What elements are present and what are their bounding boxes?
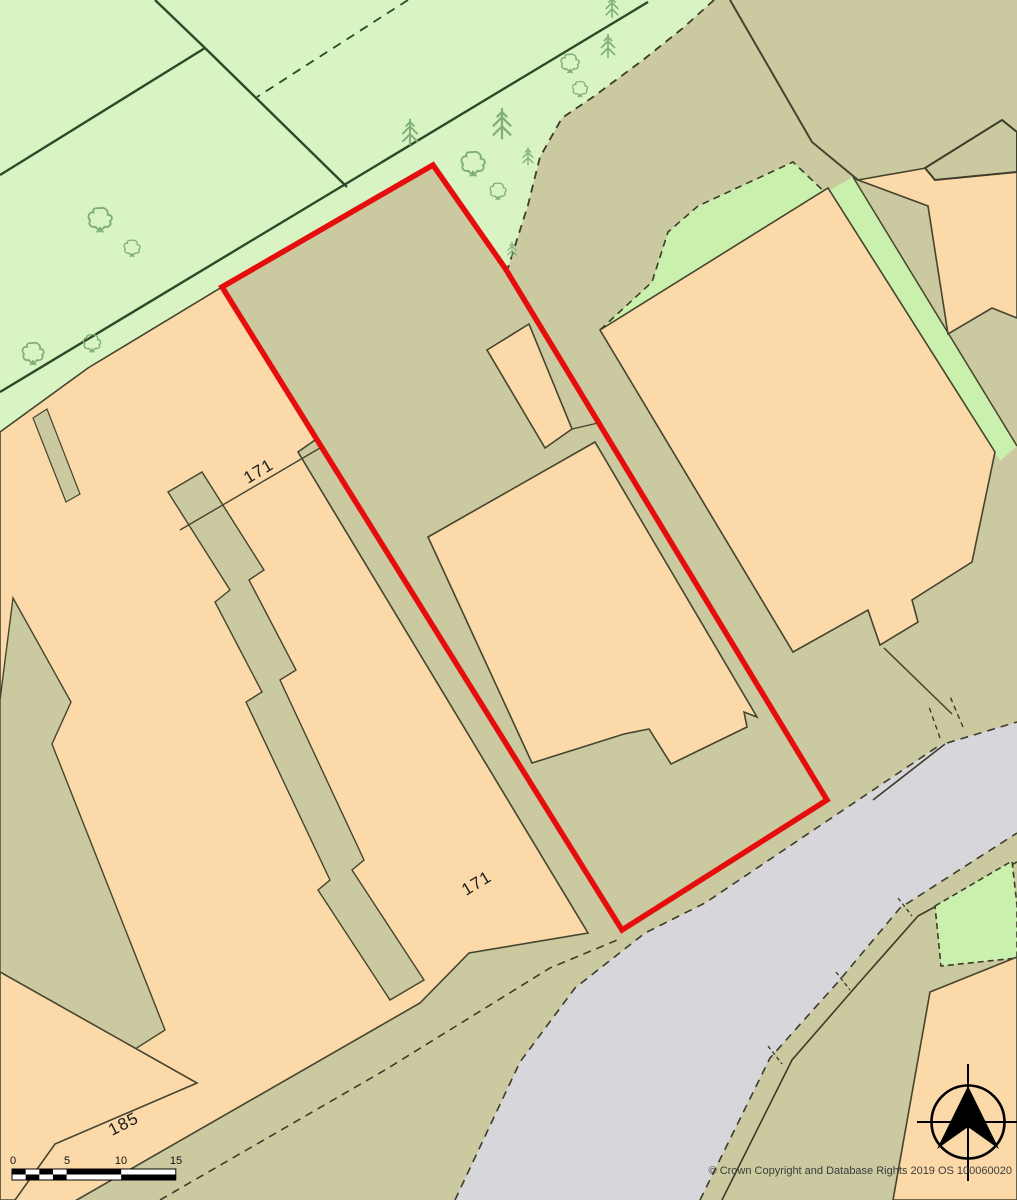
copyright-text: © Crown Copyright and Database Rights 20… — [709, 1165, 1012, 1177]
scale-tick-5: 5 — [64, 1155, 70, 1167]
scale-tick-0: 0 — [10, 1155, 16, 1167]
scale-tick-15: 15 — [170, 1155, 182, 1167]
scale-tick-10: 10 — [115, 1155, 127, 1167]
site-plan-map: 171 171 185 0 5 10 15 © Crown Copyright … — [0, 0, 1017, 1200]
map-canvas: 171 171 185 0 5 10 15 © Crown Copyright … — [0, 0, 1017, 1200]
